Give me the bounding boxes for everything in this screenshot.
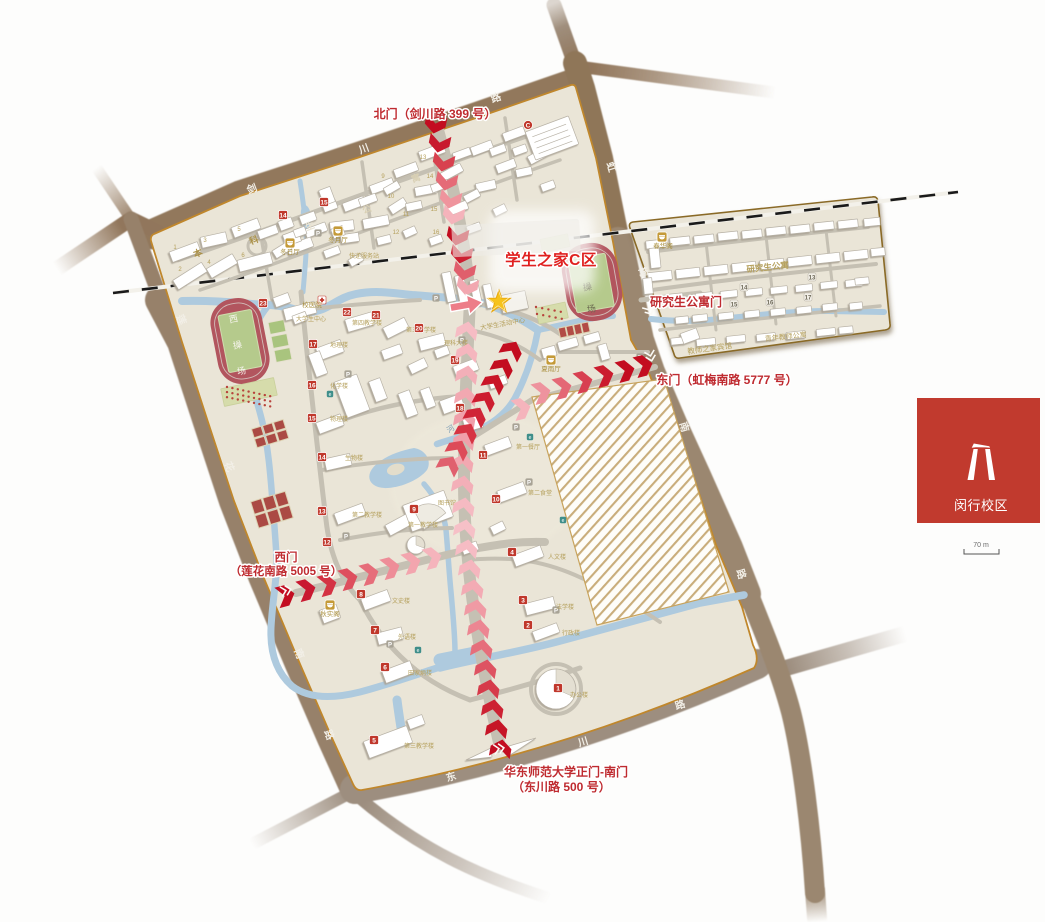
svg-text:化学楼: 化学楼 [330, 382, 348, 390]
svg-text:21: 21 [372, 313, 380, 320]
svg-text:P: P [527, 481, 531, 487]
svg-text:15: 15 [731, 302, 738, 308]
svg-text:P: P [344, 535, 348, 541]
svg-text:8: 8 [359, 592, 363, 599]
svg-text:场: 场 [236, 365, 247, 377]
svg-text:5: 5 [372, 738, 376, 745]
svg-text:16: 16 [767, 300, 774, 306]
svg-text:e: e [417, 648, 420, 654]
svg-text:70 m: 70 m [973, 542, 989, 549]
svg-text:（东川路 500 号）: （东川路 500 号） [512, 779, 611, 794]
svg-text:东门（虹梅南路 5777 号）: 东门（虹梅南路 5777 号） [656, 372, 797, 387]
svg-text:14: 14 [318, 455, 326, 462]
svg-text:14: 14 [427, 174, 434, 180]
svg-text:场: 场 [586, 303, 597, 314]
svg-text:7: 7 [373, 628, 377, 635]
svg-text:冬月厅: 冬月厅 [328, 235, 348, 244]
svg-text:闵行校区: 闵行校区 [954, 498, 1008, 513]
svg-text:13: 13 [420, 155, 427, 161]
svg-text:e: e [329, 392, 332, 398]
svg-text:12: 12 [393, 230, 400, 236]
svg-text:秋实阁: 秋实阁 [320, 609, 340, 618]
svg-text:15: 15 [431, 207, 438, 213]
svg-text:第二教学楼: 第二教学楼 [352, 511, 382, 519]
svg-text:北门（剑川路 399 号）: 北门（剑川路 399 号） [374, 106, 497, 121]
svg-text:13: 13 [318, 509, 326, 516]
svg-text:田家炳楼: 田家炳楼 [408, 669, 432, 677]
svg-text:西门: 西门 [275, 550, 298, 564]
svg-text:第二食堂: 第二食堂 [528, 489, 552, 497]
svg-text:学生之家C区: 学生之家C区 [505, 250, 597, 269]
svg-text:P: P [316, 232, 320, 238]
svg-text:12: 12 [323, 540, 331, 547]
svg-text:15: 15 [320, 200, 328, 207]
svg-text:10: 10 [388, 194, 395, 200]
svg-text:春华阁: 春华阁 [653, 241, 673, 250]
svg-text:冬日厅: 冬日厅 [280, 247, 300, 256]
svg-text:3: 3 [521, 598, 525, 605]
svg-text:22: 22 [343, 310, 351, 317]
svg-text:第一餐厅: 第一餐厅 [516, 443, 540, 451]
svg-text:10: 10 [492, 497, 500, 504]
svg-text:第四教学楼: 第四教学楼 [352, 319, 382, 327]
svg-text:第一教学楼: 第一教学楼 [408, 521, 438, 529]
svg-text:图书馆: 图书馆 [438, 499, 456, 507]
svg-text:9: 9 [412, 507, 416, 514]
svg-text:17: 17 [805, 295, 812, 301]
svg-text:17: 17 [309, 342, 317, 349]
svg-text:物理楼: 物理楼 [330, 415, 348, 423]
svg-text:4: 4 [510, 550, 514, 557]
svg-text:校医院: 校医院 [302, 300, 322, 309]
svg-text:第三教学楼: 第三教学楼 [404, 742, 434, 750]
svg-text:生物楼: 生物楼 [345, 454, 363, 462]
svg-text:20: 20 [415, 326, 423, 333]
svg-text:文史楼: 文史楼 [392, 597, 410, 605]
svg-text:13: 13 [809, 275, 816, 281]
svg-text:e: e [562, 518, 565, 524]
svg-text:人文楼: 人文楼 [548, 553, 566, 561]
svg-text:P: P [514, 426, 518, 432]
svg-text:14: 14 [741, 285, 748, 291]
svg-text:11: 11 [480, 453, 487, 460]
svg-text:15: 15 [308, 416, 316, 423]
svg-text:办公楼: 办公楼 [570, 691, 588, 699]
svg-text:地理楼: 地理楼 [330, 341, 348, 349]
svg-text:1: 1 [556, 686, 560, 693]
svg-text:P: P [346, 373, 350, 379]
svg-text:夏雨厅: 夏雨厅 [541, 365, 561, 373]
svg-text:P: P [388, 643, 392, 649]
svg-text:华东师范大学正门-南门: 华东师范大学正门-南门 [504, 764, 628, 779]
svg-text:16: 16 [433, 230, 440, 236]
svg-text:16: 16 [308, 383, 316, 390]
svg-text:研究生公寓门: 研究生公寓门 [650, 294, 722, 309]
svg-text:快递服务站: 快递服务站 [349, 252, 379, 260]
svg-text:法学楼: 法学楼 [556, 603, 574, 611]
svg-text:C: C [526, 123, 531, 130]
svg-text:23: 23 [259, 301, 267, 308]
svg-text:2: 2 [526, 623, 530, 630]
svg-text:6: 6 [383, 665, 387, 672]
svg-text:11: 11 [403, 212, 410, 218]
svg-text:（莲花南路 5005 号）: （莲花南路 5005 号） [230, 564, 342, 578]
svg-text:14: 14 [279, 213, 287, 220]
svg-text:大学生中心: 大学生中心 [296, 315, 326, 323]
svg-text:行政楼: 行政楼 [562, 629, 580, 637]
svg-text:P: P [434, 297, 438, 303]
svg-text:e: e [529, 435, 532, 441]
svg-text:外语楼: 外语楼 [398, 633, 416, 641]
svg-text:西: 西 [228, 313, 239, 325]
